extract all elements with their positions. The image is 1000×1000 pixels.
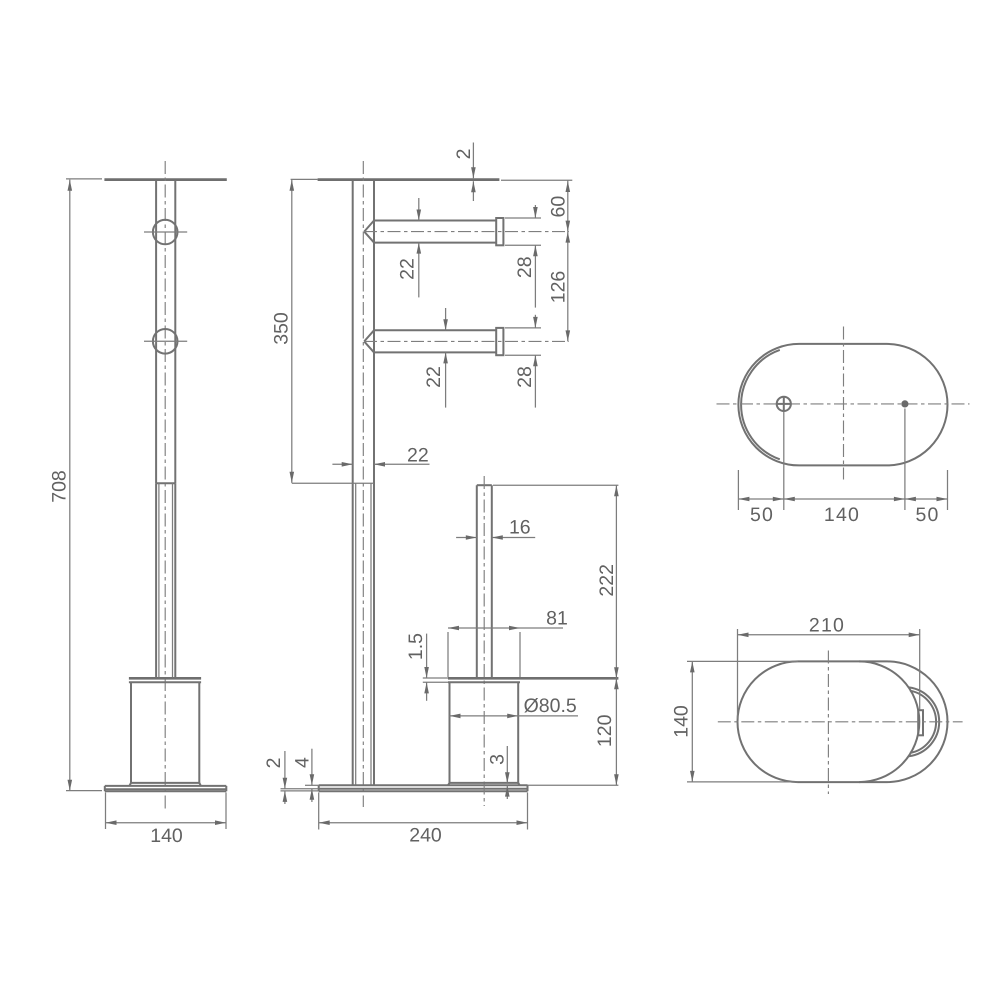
svg-text:22: 22: [407, 444, 429, 466]
svg-text:120: 120: [594, 714, 616, 747]
svg-text:708: 708: [49, 470, 71, 503]
svg-text:350: 350: [270, 312, 292, 345]
svg-text:50: 50: [915, 504, 939, 526]
svg-text:140: 140: [824, 504, 860, 526]
svg-text:22: 22: [397, 258, 419, 280]
svg-text:60: 60: [548, 196, 570, 218]
svg-text:4: 4: [291, 757, 313, 768]
svg-text:3: 3: [487, 754, 509, 765]
svg-text:140: 140: [671, 705, 693, 738]
svg-text:222: 222: [596, 564, 618, 597]
svg-text:50: 50: [750, 504, 774, 526]
svg-text:28: 28: [514, 256, 536, 278]
svg-text:140: 140: [150, 825, 183, 847]
svg-text:1.5: 1.5: [405, 633, 427, 660]
svg-text:Ø80.5: Ø80.5: [524, 695, 577, 717]
svg-text:2: 2: [263, 758, 285, 769]
svg-text:240: 240: [409, 825, 442, 847]
svg-text:81: 81: [546, 608, 568, 630]
svg-text:28: 28: [514, 366, 536, 388]
svg-text:2: 2: [453, 149, 475, 160]
svg-text:22: 22: [423, 366, 445, 388]
svg-text:126: 126: [548, 271, 570, 304]
svg-text:16: 16: [509, 517, 531, 539]
svg-text:210: 210: [809, 615, 845, 637]
